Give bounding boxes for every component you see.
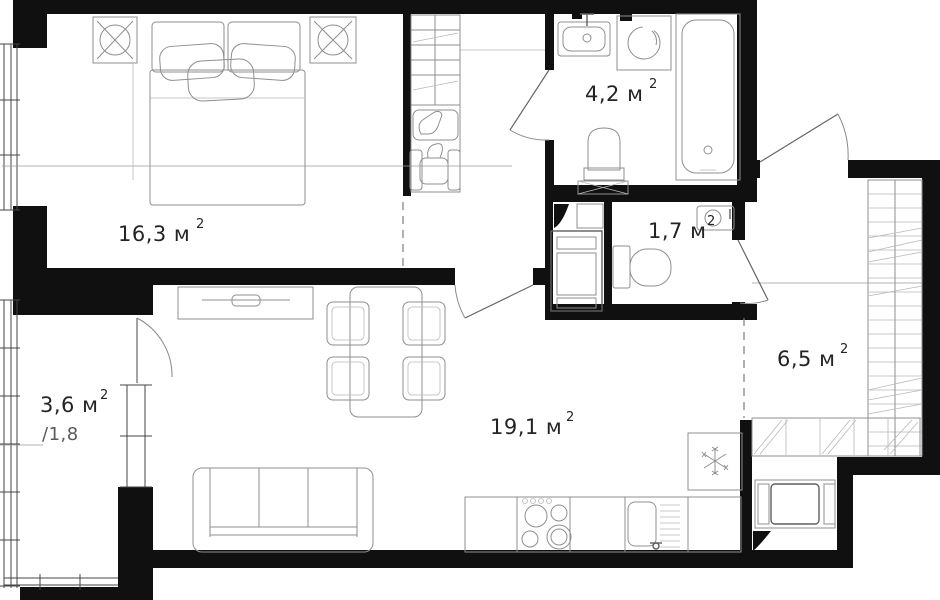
pillow-deco	[187, 58, 255, 101]
wc-door	[738, 240, 768, 303]
desk-chair	[410, 144, 460, 190]
floor-plan: 16,3 м 2 4,2 м 2 1,7 м 2 6,5 м 2 19,1 м …	[0, 0, 940, 600]
refrigerator	[688, 433, 742, 490]
stove	[522, 499, 571, 550]
room-labels: 16,3 м 2 4,2 м 2 1,7 м 2 6,5 м 2 19,1 м …	[40, 77, 849, 445]
bedroom-door	[455, 285, 533, 318]
appliance-niche	[753, 480, 835, 551]
kitchen-counter	[465, 497, 741, 552]
hallway-wardrobe	[868, 180, 922, 456]
room-label-wc-sup: 2	[707, 214, 716, 229]
chair-seat	[332, 362, 364, 395]
room-label-balcony-coefficient: /1,8	[42, 424, 79, 445]
room-label-living-kitchen-sup: 2	[566, 410, 575, 425]
balcony-partition-window	[120, 385, 152, 487]
wall-door-stub	[533, 268, 547, 285]
room-label-bathroom-sup: 2	[649, 77, 658, 92]
pillow-right	[230, 43, 296, 81]
lounge-chair	[413, 110, 458, 140]
room-label-hallway-sup: 2	[840, 342, 849, 357]
snowflake-icon	[702, 447, 728, 475]
wardrobe-bedroom	[411, 15, 460, 192]
room-label-wc: 1,7 м	[648, 219, 706, 243]
room-label-living-kitchen: 19,1 м	[490, 415, 562, 439]
wall-bedroom-bottom	[13, 268, 455, 285]
room-label-balcony: 3,6 м	[40, 393, 98, 417]
chair-seat	[332, 307, 364, 340]
room-label-bedroom-sup: 2	[196, 217, 205, 232]
pillow-left	[159, 43, 225, 81]
kitchen-sink	[628, 502, 680, 549]
wall-balcony-right-lower	[118, 487, 153, 600]
chair	[327, 357, 369, 400]
floor-plan-drawing: 16,3 м 2 4,2 м 2 1,7 м 2 6,5 м 2 19,1 м …	[0, 0, 940, 600]
wall-bathroom-left-upper	[545, 14, 554, 70]
balcony-glazing-left	[0, 300, 20, 588]
chair	[327, 302, 369, 345]
room-label-bathroom: 4,2 м	[585, 82, 643, 106]
wall-balcony-top	[13, 284, 153, 315]
wall-top-left-block	[13, 0, 47, 48]
wall-top	[13, 0, 757, 14]
washing-machine	[617, 16, 671, 70]
wall-wc-top	[612, 188, 732, 202]
dining-set	[327, 287, 445, 417]
shaft-corner-symbol	[753, 531, 771, 551]
balcony-door	[137, 318, 172, 383]
bathroom-toilet	[584, 128, 624, 180]
tv-console	[178, 287, 313, 319]
chair-seat	[408, 362, 440, 395]
room-label-hallway: 6,5 м	[777, 347, 835, 371]
wc-toilet	[613, 246, 671, 288]
wall-right-exterior	[922, 160, 940, 475]
living-kitchen-furniture	[178, 287, 742, 552]
nightstand-right	[310, 17, 356, 63]
wall-tick-2	[620, 14, 632, 21]
wall-bottom	[150, 550, 853, 568]
bedroom-window	[0, 44, 20, 210]
chair	[403, 302, 445, 345]
dining-table	[350, 287, 422, 417]
bathtub	[676, 14, 740, 180]
wall-tick-1	[572, 14, 582, 19]
walls	[13, 0, 940, 600]
axis-lines	[0, 50, 922, 445]
chair	[403, 357, 445, 400]
nightstand-left	[93, 17, 137, 63]
bed	[150, 22, 305, 205]
room-label-bedroom: 16,3 м	[118, 222, 190, 246]
entrance-door	[760, 114, 848, 162]
wall-wc-bottom	[545, 304, 757, 320]
sofa	[193, 468, 373, 552]
bathroom-sink	[558, 14, 610, 56]
room-label-balcony-sup: 2	[100, 388, 109, 403]
chair-seat	[408, 307, 440, 340]
bathroom-door	[510, 70, 549, 140]
